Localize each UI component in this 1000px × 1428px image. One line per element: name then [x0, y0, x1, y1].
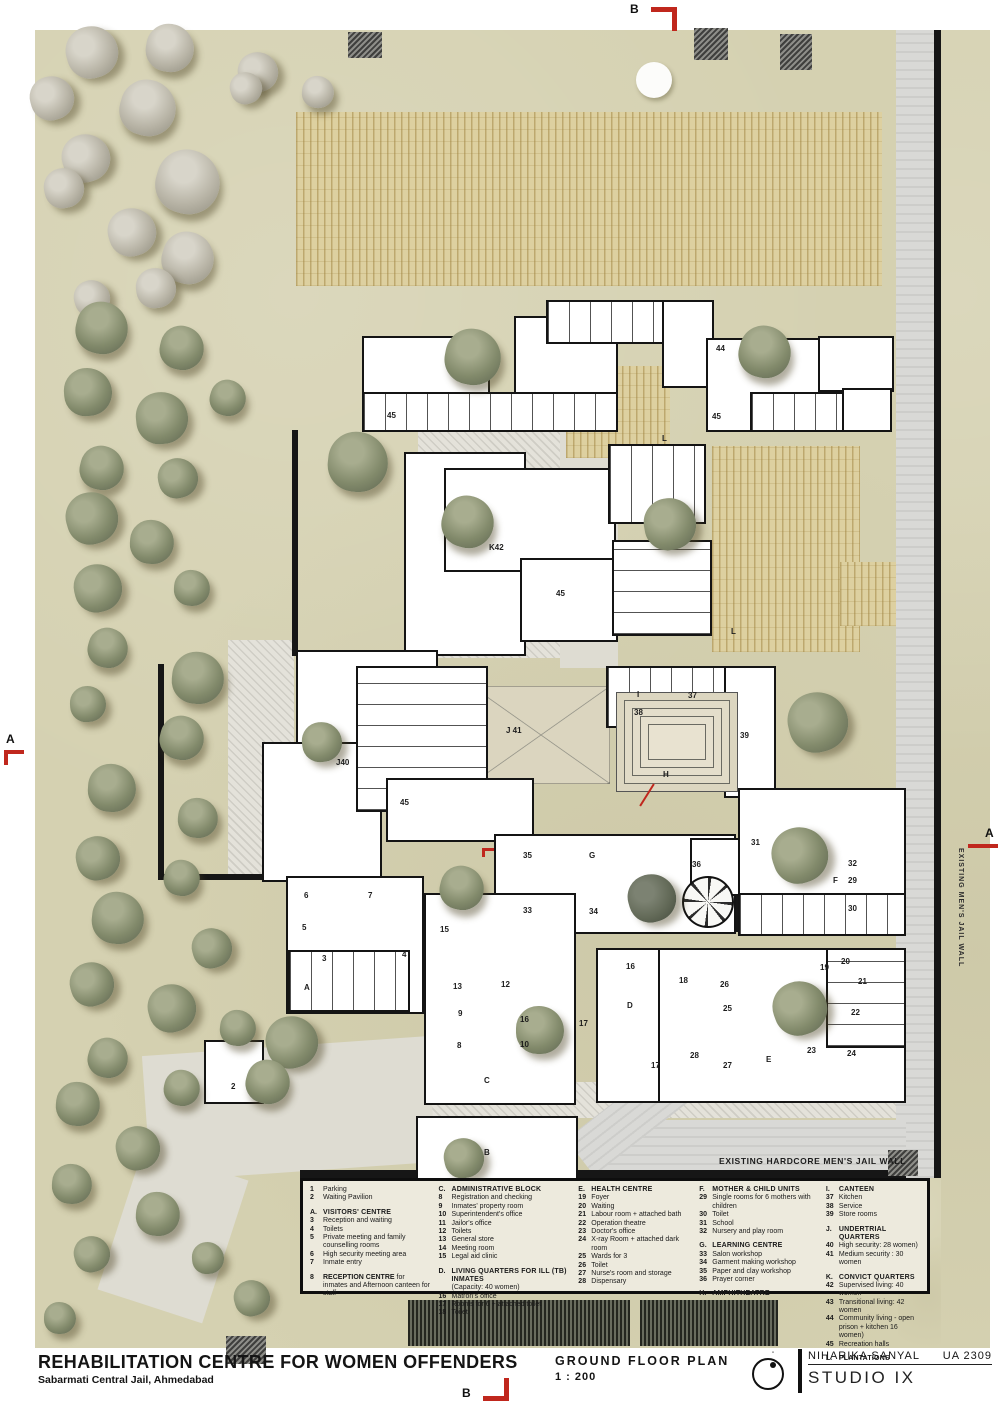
legend-item-text: AMPHITHEATRE	[712, 1290, 818, 1298]
legend-item-number: 8	[439, 1194, 452, 1202]
author-name: NIHARIKA SANYAL	[808, 1350, 920, 1362]
room-label: B	[484, 1148, 490, 1157]
amphitheatre-ring	[648, 724, 706, 760]
legend-item-number: 22	[578, 1220, 591, 1228]
legend-item: 11Jailor's office	[439, 1220, 571, 1228]
legend-heading: H.AMPHITHEATRE	[699, 1290, 818, 1298]
building	[416, 1116, 578, 1180]
legend-heading: J.UNDERTRIAL QUARTERS	[826, 1226, 920, 1243]
amphitheatre	[616, 692, 738, 792]
legend-item: 9Inmates' property room	[439, 1203, 571, 1211]
legend-item-text: Foyer	[591, 1194, 691, 1202]
legend-item-number: 18	[439, 1309, 452, 1317]
room-label: E	[766, 1055, 771, 1064]
legend-item: 22Operation theatre	[578, 1220, 691, 1228]
drawing-name: GROUND FLOOR PLAN	[555, 1354, 729, 1368]
legend-item: 42Supervised living: 40 women	[826, 1282, 920, 1299]
legend-item-text: High security: 28 women)	[839, 1242, 920, 1250]
room-label: 9	[458, 1009, 462, 1018]
legend-item: 34Garment making workshop	[699, 1259, 818, 1267]
legend-item-text: Supervised living: 40 women	[839, 1282, 920, 1299]
legend-item-number: 2	[310, 1194, 323, 1202]
room-label: 24	[847, 1049, 856, 1058]
legend-column: I.CANTEEN37Kitchen38Service39Store rooms…	[826, 1186, 920, 1286]
room-label: 10	[520, 1040, 529, 1049]
legend-item-number: 25	[578, 1253, 591, 1261]
legend-item: 39Store rooms	[826, 1211, 920, 1219]
wall	[158, 664, 164, 880]
room-label: L	[662, 434, 667, 443]
room-label: K42	[489, 543, 504, 552]
room-label: 28	[690, 1051, 699, 1060]
room-label: 4	[402, 950, 406, 959]
titleblock-divider	[798, 1349, 802, 1393]
legend-item: 5Private meeting and family counselling …	[310, 1234, 431, 1251]
legend-heading: A.VISITORS' CENTRE	[310, 1209, 431, 1217]
legend-item-text: LEARNING CENTRE	[712, 1242, 818, 1250]
legend-item: 37Kitchen	[826, 1194, 920, 1202]
room-label: 45	[400, 798, 409, 807]
legend-item-text: Registration and checking	[452, 1194, 571, 1202]
legend-item-text: HEALTH CENTRE	[591, 1186, 691, 1194]
legend-item-number: 27	[578, 1270, 591, 1278]
legend-item: 27Nurse's room and storage	[578, 1270, 691, 1278]
legend-item-text: (Capacity: 40 women)	[452, 1284, 571, 1292]
legend-item-text: Garment making workshop	[712, 1259, 818, 1267]
legend-item-text: Dispensary	[591, 1278, 691, 1286]
legend-item-text: Salon workshop	[712, 1251, 818, 1259]
legend-item-number: 16	[439, 1293, 452, 1301]
building	[386, 778, 534, 842]
legend-item-number: 31	[699, 1220, 712, 1228]
legend-item-text: Reception and waiting	[323, 1217, 431, 1225]
legend-item: 29Single rooms for 6 mothers with childr…	[699, 1194, 818, 1211]
room-label: 35	[523, 851, 532, 860]
legend-item-text: Paper and clay workshop	[712, 1268, 818, 1276]
legend-heading: I.CANTEEN	[826, 1186, 920, 1194]
project-title: REHABILITATION CENTRE FOR WOMEN OFFENDER…	[38, 1352, 518, 1373]
legend-column: E.HEALTH CENTRE19Foyer20Waiting21Labour …	[578, 1186, 691, 1286]
legend-item-number: 42	[826, 1282, 839, 1299]
legend-item: 25Wards for 3	[578, 1253, 691, 1261]
room-label: 3	[322, 954, 326, 963]
legend-item-text: Nurse's room and storage	[591, 1270, 691, 1278]
section-cut-icon	[504, 1378, 509, 1401]
building	[826, 948, 906, 1048]
room-label: 18	[679, 976, 688, 985]
hedge-row	[640, 1300, 778, 1346]
legend-item: 30Toilet	[699, 1211, 818, 1219]
legend-item-number: 29	[699, 1194, 712, 1211]
amphitheatre-ring	[640, 716, 714, 768]
legend-item-number: 13	[439, 1236, 452, 1244]
legend-item-text: High security meeting area	[323, 1251, 431, 1259]
room-label: 17	[579, 1019, 588, 1028]
project-subtitle: Sabarmati Central Jail, Ahmedabad	[38, 1374, 214, 1386]
legend-item-number: 15	[439, 1253, 452, 1261]
studio-name: STUDIO IX	[808, 1368, 916, 1388]
legend-column: 1Parking2Waiting PavilionA.VISITORS' CEN…	[310, 1186, 431, 1286]
legend-item: 24X-ray Room + attached dark room	[578, 1236, 691, 1253]
legend-item-text: Matron's office	[452, 1293, 571, 1301]
legend-column: C.ADMINISTRATIVE BLOCK8Registration and …	[439, 1186, 571, 1286]
legend-item-number: 34	[699, 1259, 712, 1267]
room-label: 45	[387, 411, 396, 420]
wall	[292, 430, 298, 656]
room-label: 39	[740, 731, 749, 740]
room-label: 6	[304, 891, 308, 900]
north-logo-icon: ''	[752, 1358, 784, 1390]
room-label: 38	[634, 708, 643, 717]
legend-item: 35Paper and clay workshop	[699, 1268, 818, 1276]
plantation-field	[712, 446, 860, 652]
legend-item-text: CONVICT QUARTERS	[839, 1274, 920, 1282]
legend-item-number: 19	[578, 1194, 591, 1202]
legend-item-number: I.	[826, 1186, 839, 1194]
legend-item-number: 11	[439, 1220, 452, 1228]
red-leader	[482, 848, 485, 857]
legend-item-text: Toilet	[712, 1211, 818, 1219]
wall	[934, 30, 941, 1178]
legend-item-number: 37	[826, 1194, 839, 1202]
legend-item: 38Service	[826, 1203, 920, 1211]
author-row: NIHARIKA SANYAL UA 2309	[808, 1350, 992, 1365]
legend-item-number: C.	[439, 1186, 452, 1194]
legend-heading: D.LIVING QUARTERS FOR ILL (TB) INMATES	[439, 1268, 571, 1285]
legend-item-number: 8	[310, 1274, 323, 1299]
legend-item-text: Transitional living: 42 women	[839, 1299, 920, 1316]
legend-heading: E.HEALTH CENTRE	[578, 1186, 691, 1194]
legend-item: 15Legal aid clinic	[439, 1253, 571, 1261]
section-letter: B	[462, 1386, 471, 1400]
section-cut-icon	[968, 844, 998, 848]
legend-item-number: 3	[310, 1217, 323, 1225]
legend-item-text: Toilet	[591, 1262, 691, 1270]
section-cut-icon	[672, 7, 677, 31]
room-label: 20	[841, 957, 850, 966]
legend-item-text: Prayer corner	[712, 1276, 818, 1284]
legend-item: 2Waiting Pavilion	[310, 1194, 431, 1202]
room-label: H	[663, 770, 669, 779]
legend-item-text: RECEPTION CENTRE for inmates and Afterno…	[323, 1274, 431, 1299]
right-jail-wall-label: EXISTING MEN'S JAIL WALL	[946, 848, 964, 1028]
legend-item: 18Toilet	[439, 1309, 571, 1317]
room-label: 17	[651, 1061, 660, 1070]
room-label: 29	[848, 876, 857, 885]
room-label: 34	[589, 907, 598, 916]
legend-item-number: 39	[826, 1211, 839, 1219]
legend-item-text: CANTEEN	[839, 1186, 920, 1194]
water-tank	[636, 62, 672, 98]
legend-item: 43Transitional living: 42 women	[826, 1299, 920, 1316]
legend-item-text: General store	[452, 1236, 571, 1244]
legend-item-text: Waiting	[591, 1203, 691, 1211]
legend-item-number: 28	[578, 1278, 591, 1286]
drawing-scale: 1 : 200	[555, 1371, 596, 1383]
room-label: 30	[848, 904, 857, 913]
legend-item-text: Toilets	[452, 1228, 571, 1236]
room-label: J 41	[506, 726, 522, 735]
section-letter: A	[985, 826, 994, 840]
room-label: 36	[692, 860, 701, 869]
legend-item-text: Toilets	[323, 1226, 431, 1234]
ground	[941, 30, 990, 1348]
room-label: 15	[440, 925, 449, 934]
courtyard	[472, 686, 610, 784]
legend-item: 32Nursery and play room	[699, 1228, 818, 1236]
amphitheatre-ring	[632, 708, 722, 776]
building	[842, 388, 892, 432]
legend-item-number: 44	[826, 1315, 839, 1340]
legend-item-number: 7	[310, 1259, 323, 1267]
legend-item-number: 30	[699, 1211, 712, 1219]
legend-item-text: Doctor's office	[591, 1228, 691, 1236]
plantation-field	[296, 112, 882, 286]
room-label: D	[627, 1001, 633, 1010]
room-label: 19	[820, 963, 829, 972]
legend-item: 10Superintendent's office	[439, 1211, 571, 1219]
gravel-patch	[348, 32, 382, 58]
room-label: 16	[520, 1015, 529, 1024]
legend-item-text: Private meeting and family counselling r…	[323, 1234, 431, 1251]
legend-item-text: ADMINISTRATIVE BLOCK	[452, 1186, 571, 1194]
legend-item: 14Meeting room	[439, 1245, 571, 1253]
legend-item: 36Prayer corner	[699, 1276, 818, 1284]
legend-item-number: 26	[578, 1262, 591, 1270]
legend-item-number: E.	[578, 1186, 591, 1194]
legend-item-text: Parking	[323, 1186, 431, 1194]
room-label: 45	[712, 412, 721, 421]
legend-item-text: Superintendent's office	[452, 1211, 571, 1219]
legend-item-number: 9	[439, 1203, 452, 1211]
legend-item-text: Inmates' property room	[452, 1203, 571, 1211]
legend-item-number	[439, 1284, 452, 1292]
legend-item: 16Matron's office	[439, 1293, 571, 1301]
building	[520, 558, 618, 642]
room-label: 27	[723, 1061, 732, 1070]
legend-item: 12Toilets	[439, 1228, 571, 1236]
legend-item-text: LIVING QUARTERS FOR ILL (TB) INMATES	[452, 1268, 571, 1285]
legend-item-text: Jailor's office	[452, 1220, 571, 1228]
legend-item: 6High security meeting area	[310, 1251, 431, 1259]
legend-item-text: VISITORS' CENTRE	[323, 1209, 431, 1217]
building	[362, 392, 618, 432]
room-label: 44	[716, 344, 725, 353]
legend-item-number: 40	[826, 1242, 839, 1250]
legend-item-text: UNDERTRIAL QUARTERS	[839, 1226, 920, 1243]
spiral-stair-icon	[682, 876, 734, 928]
legend-item-text: Store rooms	[839, 1211, 920, 1219]
legend-item-text: Service	[839, 1203, 920, 1211]
legend-item-number: G.	[699, 1242, 712, 1250]
room-label: I	[637, 690, 639, 699]
legend-item-text: Wards for 3	[591, 1253, 691, 1261]
room-label: 32	[848, 859, 857, 868]
room-label: 8	[457, 1041, 461, 1050]
legend-item-text: Kitchen	[839, 1194, 920, 1202]
legend-item-number: 43	[826, 1299, 839, 1316]
room-label: 26	[720, 980, 729, 989]
legend-item-number: 23	[578, 1228, 591, 1236]
legend-item-number: 21	[578, 1211, 591, 1219]
legend-item-text: Medium security : 30 women	[839, 1251, 920, 1268]
room-label: 25	[723, 1004, 732, 1013]
legend-item: 19Foyer	[578, 1194, 691, 1202]
legend-item-number: D.	[439, 1268, 452, 1285]
room-label: 22	[851, 1008, 860, 1017]
room-label: 5	[302, 923, 306, 932]
legend-heading: F.MOTHER & CHILD UNITS	[699, 1186, 818, 1194]
legend-item-number: K.	[826, 1274, 839, 1282]
legend-item: 21Labour room + attached bath	[578, 1211, 691, 1219]
legend-item: 45Recreation halls	[826, 1341, 920, 1349]
building	[818, 336, 894, 392]
legend-heading: G.LEARNING CENTRE	[699, 1242, 818, 1250]
room-label: 33	[523, 906, 532, 915]
room-label: 21	[858, 977, 867, 986]
room-label: 23	[807, 1046, 816, 1055]
legend-item-number: 33	[699, 1251, 712, 1259]
legend-item-text: Community living - open prison + kitchen…	[839, 1315, 920, 1340]
legend-item-number: 5	[310, 1234, 323, 1251]
legend-item: 31School	[699, 1220, 818, 1228]
legend-item-text: Waiting Pavilion	[323, 1194, 431, 1202]
legend-item: 17Rooms for 6 + attached toilet	[439, 1301, 571, 1309]
legend-item: 7Inmate entry	[310, 1259, 431, 1267]
legend-item: 40High security: 28 women)	[826, 1242, 920, 1250]
legend-item-text: MOTHER & CHILD UNITS	[712, 1186, 818, 1194]
room-label: F	[833, 876, 838, 885]
tree	[44, 1302, 76, 1334]
legend-item-number: A.	[310, 1209, 323, 1217]
room-label: A	[304, 983, 310, 992]
legend-item-number: 38	[826, 1203, 839, 1211]
legend-item-text: Legal aid clinic	[452, 1253, 571, 1261]
room-label: 2	[231, 1082, 235, 1091]
room-label: C	[484, 1076, 490, 1085]
legend-item: 26Toilet	[578, 1262, 691, 1270]
building	[288, 950, 410, 1012]
room-label: J40	[336, 758, 349, 767]
sheet-code: UA 2309	[943, 1350, 992, 1362]
legend-item-number: 17	[439, 1301, 452, 1309]
room-label: 31	[751, 838, 760, 847]
room-label: 16	[626, 962, 635, 971]
legend-item-number: 24	[578, 1236, 591, 1253]
legend-item-number: 20	[578, 1203, 591, 1211]
drawing-sheet: 444545LLK4245I373839HJ 41J40453135G3632F…	[0, 0, 1000, 1428]
room-label: 12	[501, 980, 510, 989]
legend-item-text: Single rooms for 6 mothers with children	[712, 1194, 818, 1211]
legend-item-number: 6	[310, 1251, 323, 1259]
legend-item: 13General store	[439, 1236, 571, 1244]
legend-item-text: Rooms for 6 + attached toilet	[452, 1301, 571, 1309]
legend-item-text: Inmate entry	[323, 1259, 431, 1267]
legend-item: 3Reception and waiting	[310, 1217, 431, 1225]
legend-item: 8Registration and checking	[439, 1194, 571, 1202]
legend-item-number: J.	[826, 1226, 839, 1243]
legend-item: (Capacity: 40 women)	[439, 1284, 571, 1292]
building	[612, 540, 712, 636]
legend-item: 41Medium security : 30 women	[826, 1251, 920, 1268]
section-cut-icon	[4, 750, 8, 765]
gravel-patch	[694, 28, 728, 60]
room-label: 7	[368, 891, 372, 900]
section-letter: B	[630, 2, 639, 16]
legend-heading: C.ADMINISTRATIVE BLOCK	[439, 1186, 571, 1194]
legend-item-text: Recreation halls	[839, 1341, 920, 1349]
room-label: 13	[453, 982, 462, 991]
legend-item-number: 4	[310, 1226, 323, 1234]
building	[738, 893, 906, 936]
legend-heading: K.CONVICT QUARTERS	[826, 1274, 920, 1282]
legend-item: 28Dispensary	[578, 1278, 691, 1286]
legend-item-number: 41	[826, 1251, 839, 1268]
legend-item-number: 36	[699, 1276, 712, 1284]
legend-item: 8RECEPTION CENTRE for inmates and Aftern…	[310, 1274, 431, 1299]
legend-item-number: 10	[439, 1211, 452, 1219]
legend-item: 44Community living - open prison + kitch…	[826, 1315, 920, 1340]
room-label: G	[589, 851, 595, 860]
legend-item-text: Labour room + attached bath	[591, 1211, 691, 1219]
legend-item-number: 14	[439, 1245, 452, 1253]
legend-item-number: 32	[699, 1228, 712, 1236]
room-label: 45	[556, 589, 565, 598]
legend-item-text: Operation theatre	[591, 1220, 691, 1228]
legend-item-text: School	[712, 1220, 818, 1228]
room-label: L	[731, 627, 736, 636]
legend-item: 23Doctor's office	[578, 1228, 691, 1236]
north-dot-icon	[770, 1362, 776, 1368]
logo-tick: ''	[772, 1352, 774, 1358]
room-label: 37	[688, 691, 697, 700]
legend-item-number: 45	[826, 1341, 839, 1349]
legend-item-number: H.	[699, 1290, 712, 1298]
legend-item-number: 1	[310, 1186, 323, 1194]
legend: 1Parking2Waiting PavilionA.VISITORS' CEN…	[300, 1178, 930, 1294]
legend-item-text: Nursery and play room	[712, 1228, 818, 1236]
legend-item-text: Meeting room	[452, 1245, 571, 1253]
bottom-jail-wall-label: EXISTING HARDCORE MEN'S JAIL WALL	[620, 1156, 906, 1166]
gravel-patch	[780, 34, 812, 70]
legend-item: 33Salon workshop	[699, 1251, 818, 1259]
legend-item-text: Toilet	[452, 1309, 571, 1317]
section-letter: A	[6, 732, 15, 746]
legend-item-text: X-ray Room + attached dark room	[591, 1236, 691, 1253]
legend-item: 20Waiting	[578, 1203, 691, 1211]
legend-item-number: 12	[439, 1228, 452, 1236]
legend-column: F.MOTHER & CHILD UNITS29Single rooms for…	[699, 1186, 818, 1286]
legend-item-number: F.	[699, 1186, 712, 1194]
plantation-field	[840, 562, 896, 626]
legend-item: 4Toilets	[310, 1226, 431, 1234]
legend-item-number: 35	[699, 1268, 712, 1276]
legend-item: 1Parking	[310, 1186, 431, 1194]
